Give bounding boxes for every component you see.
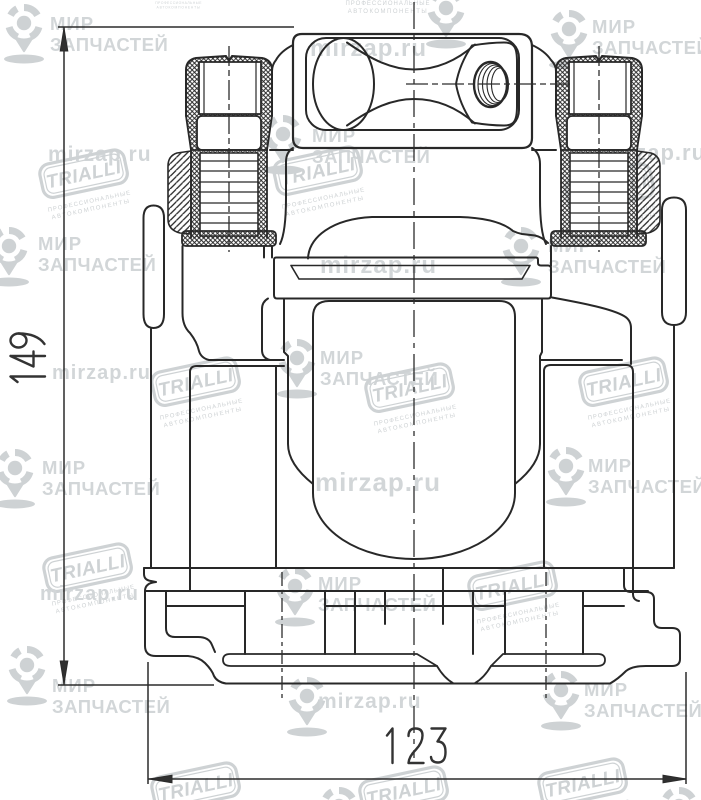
svg-text:mirzap.ru: mirzap.ru	[318, 690, 422, 713]
svg-text:mirzap.ru: mirzap.ru	[52, 362, 151, 384]
svg-text:mirzap.ru: mirzap.ru	[40, 583, 139, 605]
svg-text:mirzap.ru: mirzap.ru	[315, 467, 441, 497]
